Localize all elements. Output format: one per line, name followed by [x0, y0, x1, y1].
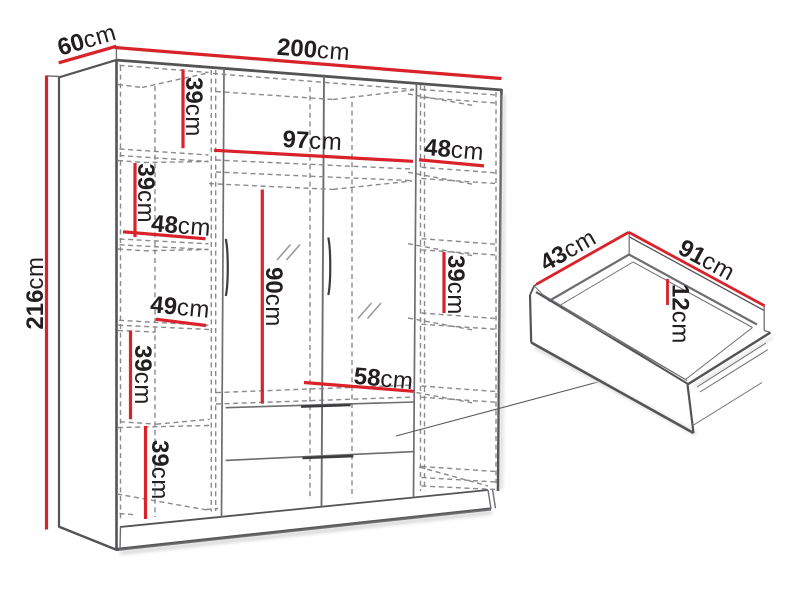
- svg-text:39cm: 39cm: [180, 77, 207, 137]
- svg-text:48cm: 48cm: [423, 134, 485, 166]
- svg-text:90cm: 90cm: [260, 267, 287, 327]
- svg-text:48cm: 48cm: [150, 210, 212, 242]
- svg-text:49cm: 49cm: [149, 291, 211, 324]
- svg-text:39cm: 39cm: [146, 440, 173, 500]
- svg-text:12cm: 12cm: [667, 284, 694, 344]
- svg-text:39cm: 39cm: [442, 255, 469, 315]
- svg-text:216cm: 216cm: [22, 256, 49, 329]
- svg-text:58cm: 58cm: [353, 363, 415, 396]
- svg-text:39cm: 39cm: [129, 345, 156, 405]
- svg-text:97cm: 97cm: [282, 126, 343, 156]
